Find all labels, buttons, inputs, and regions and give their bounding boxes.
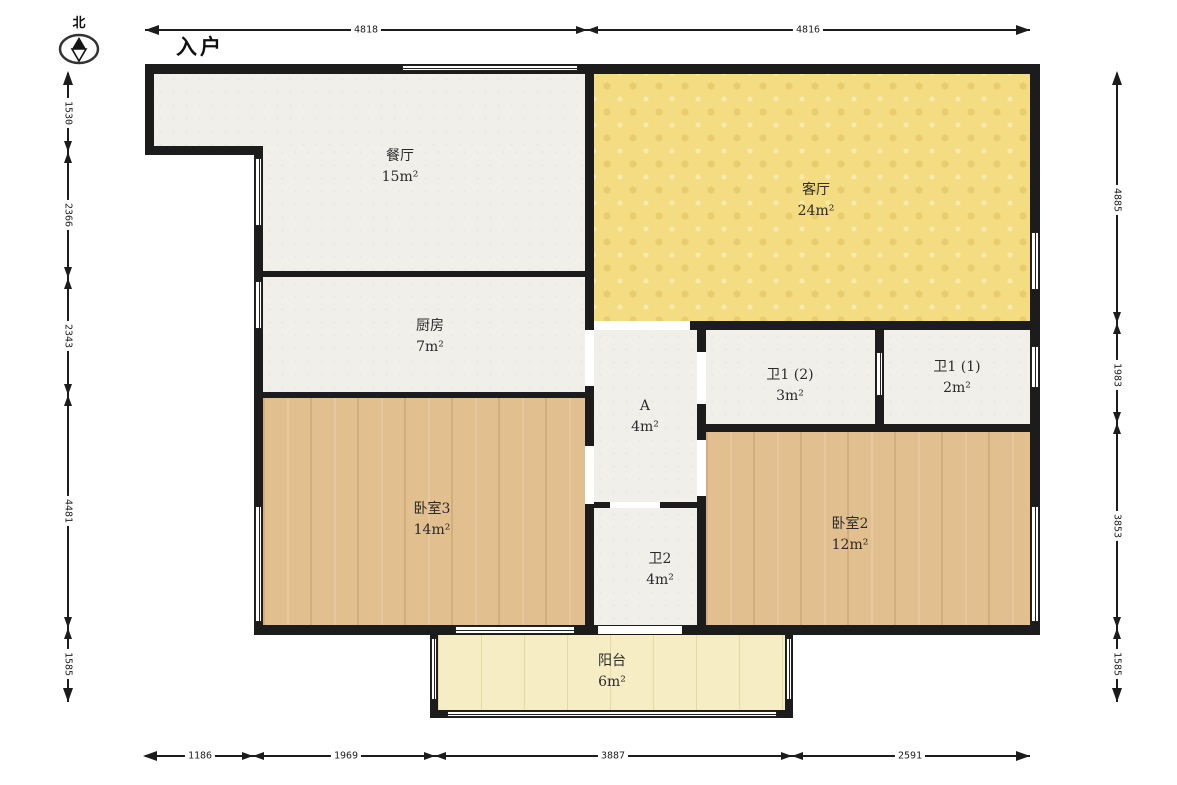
dim-value: 2591 (895, 751, 925, 762)
window (786, 638, 792, 700)
wall-segment (697, 321, 706, 352)
room-label: 卫1 (2) (766, 365, 813, 386)
wall-segment (145, 64, 154, 155)
room-label: 卧室3 (414, 499, 451, 520)
room-area: 12m² (832, 535, 869, 556)
door-opening (585, 332, 594, 386)
window (876, 352, 883, 396)
label-bath1-1: 卫1 (1) 2m² (933, 357, 980, 399)
label-kitchen: 厨房 7m² (416, 316, 444, 358)
door-opening (585, 446, 594, 504)
room-label: 餐厅 (382, 146, 419, 167)
dim-value: 4481 (63, 496, 74, 526)
window (402, 65, 578, 71)
room-area: 3m² (766, 386, 813, 407)
dim-value: 1983 (1112, 360, 1123, 390)
door-opening (697, 440, 706, 496)
window (255, 158, 262, 226)
wall-segment (585, 70, 594, 330)
dim-value: 1585 (63, 649, 74, 679)
room-dining-upper (154, 73, 585, 155)
label-bedroom2: 卧室2 12m² (832, 514, 869, 556)
room-label: 客厅 (798, 180, 835, 201)
label-bath2: 卫2 4m² (646, 549, 674, 591)
window (1031, 346, 1039, 388)
window (431, 638, 437, 700)
room-label: 厨房 (416, 316, 444, 337)
door-opening (697, 352, 706, 404)
label-dining: 餐厅 15m² (382, 146, 419, 188)
dim-value: 4818 (351, 25, 381, 36)
wall-segment (660, 502, 697, 508)
room-area: 7m² (416, 337, 444, 358)
window (1031, 232, 1039, 290)
room-area: 4m² (646, 570, 674, 591)
wall-segment (785, 625, 1040, 635)
label-balcony: 阳台 6m² (598, 651, 626, 693)
dim-value: 1186 (185, 751, 215, 762)
wall-segment (697, 496, 706, 626)
wall-segment (585, 504, 594, 626)
dim-value: 1969 (331, 751, 361, 762)
label-bath1-2: 卫1 (2) 3m² (766, 365, 813, 407)
wall-segment (258, 392, 594, 398)
room-label: 卫2 (646, 549, 674, 570)
room-label: 卧室2 (832, 514, 869, 535)
window (455, 626, 575, 634)
dim-value: 3853 (1112, 511, 1123, 541)
wall-segment (690, 321, 1031, 330)
room-area: 2m² (933, 378, 980, 399)
room-area: 6m² (598, 672, 626, 693)
wall-segment (697, 424, 1040, 432)
dim-value: 3887 (598, 751, 628, 762)
room-label: 卫1 (1) (933, 357, 980, 378)
entrance-label: 入户 (176, 31, 224, 61)
room-area: 4m² (631, 417, 659, 438)
dim-value: 1530 (63, 98, 74, 128)
label-living: 客厅 24m² (798, 180, 835, 222)
wall-segment (254, 625, 438, 635)
dim-value: 1585 (1112, 649, 1123, 679)
room-label: A (631, 396, 659, 417)
wall-segment (697, 404, 706, 440)
window (255, 281, 262, 329)
window (1031, 506, 1039, 622)
window (255, 506, 262, 622)
door-opening (598, 626, 682, 634)
room-area: 14m² (414, 520, 451, 541)
dim-value: 2343 (63, 321, 74, 351)
room-label: 阳台 (598, 651, 626, 672)
room-area: 15m² (382, 167, 419, 188)
dim-value: 2366 (63, 200, 74, 230)
label-bedroom3: 卧室3 14m² (414, 499, 451, 541)
room-dining (263, 146, 585, 271)
wall-segment (145, 146, 263, 155)
label-hall-a: A 4m² (631, 396, 659, 438)
wall-segment (585, 386, 594, 446)
floor-plan: 北 入户 (0, 0, 1177, 785)
wall-segment (594, 502, 610, 508)
wall-segment (258, 271, 594, 277)
door-opening (610, 502, 660, 508)
compass-north-label: 北 (56, 12, 102, 31)
room-area: 24m² (798, 201, 835, 222)
window (447, 711, 777, 717)
dim-value: 4885 (1112, 185, 1123, 215)
compass-icon (57, 32, 101, 66)
compass: 北 (56, 12, 102, 70)
dim-value: 4816 (793, 25, 823, 36)
